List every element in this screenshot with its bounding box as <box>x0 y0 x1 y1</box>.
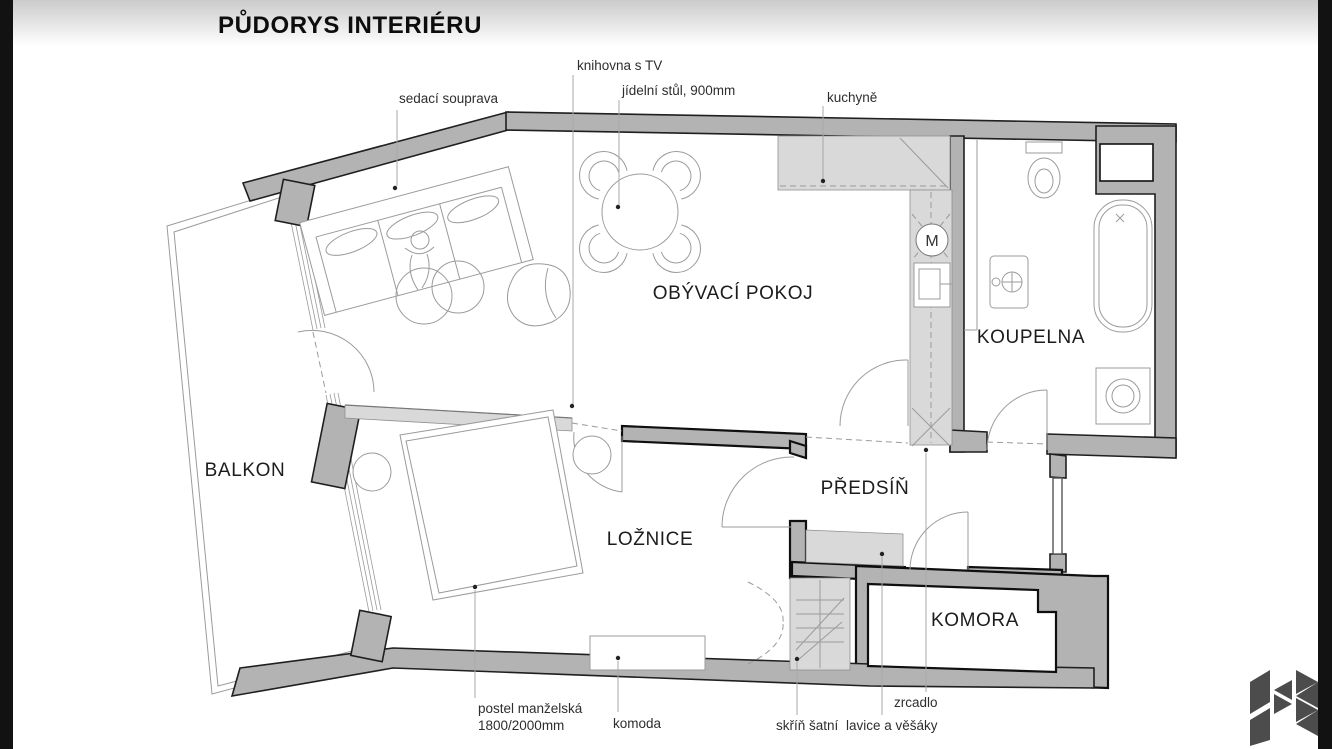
bathtub <box>1094 200 1152 332</box>
room-label-storage: KOMORA <box>931 610 1019 632</box>
callout-bench: lavice a věšáky <box>846 717 938 734</box>
callout-bed: postel manželská 1800/2000mm <box>478 700 582 734</box>
callout-bed-line1: postel manželská <box>478 700 582 717</box>
page-title: PŮDORYS INTERIÉRU <box>218 12 482 40</box>
callout-sofa: sedací souprava <box>399 90 498 107</box>
room-label-bathroom: KOUPELNA <box>977 327 1085 349</box>
room-label-balcony: BALKON <box>205 460 286 482</box>
bench <box>806 530 903 566</box>
callout-dining-table: jídelní stůl, 900mm <box>622 82 735 99</box>
callout-kitchen: kuchyně <box>827 89 877 106</box>
nightstand <box>573 436 611 474</box>
brand-logo <box>1250 670 1318 746</box>
room-label-bedroom: LOŽNICE <box>607 529 694 551</box>
entry-door-leaf <box>1053 478 1062 554</box>
floorplan-drawing: M <box>0 0 1332 749</box>
floorplan-page: M <box>0 0 1332 749</box>
washing-machine <box>1096 368 1150 424</box>
callout-bed-line2: 1800/2000mm <box>478 717 582 734</box>
washer-letter: M <box>925 233 938 250</box>
right-frame-bar <box>1318 0 1332 749</box>
toilet <box>1028 158 1060 198</box>
left-frame-bar <box>0 0 13 749</box>
dining-table <box>602 174 678 250</box>
bed <box>400 410 583 600</box>
nightstand <box>353 453 391 491</box>
dresser <box>590 636 705 670</box>
callout-bookcase: knihovna s TV <box>577 57 662 74</box>
callout-dresser: komoda <box>613 715 661 732</box>
room-label-living: OBÝVACÍ POKOJ <box>653 283 814 305</box>
room-label-hallway: PŘEDSÍŇ <box>821 478 910 500</box>
callout-mirror: zrcadlo <box>894 694 938 711</box>
callout-wardrobe: skříň šatní <box>776 717 838 734</box>
